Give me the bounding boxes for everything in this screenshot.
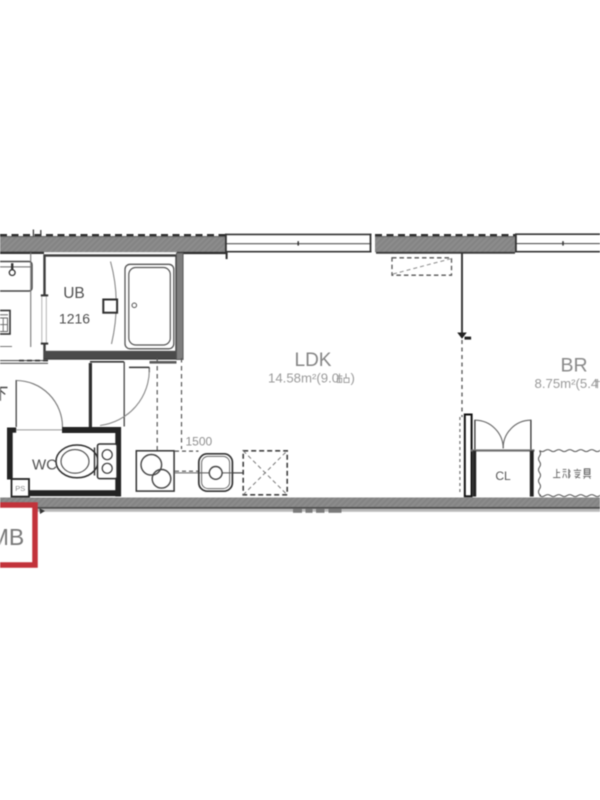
svg-text:1500: 1500: [186, 435, 213, 449]
svg-text:WC: WC: [32, 457, 57, 474]
svg-text:): ): [351, 371, 355, 386]
svg-text:8.75m²(5.4: 8.75m²(5.4: [535, 376, 599, 391]
svg-text:1216: 1216: [59, 311, 90, 327]
svg-text:14.58m²(9.0: 14.58m²(9.0: [268, 371, 339, 386]
svg-text:LDK: LDK: [295, 350, 332, 371]
svg-text:CL: CL: [495, 469, 511, 483]
svg-text:PS: PS: [15, 484, 25, 493]
svg-text:BR: BR: [560, 355, 587, 377]
svg-text:UB: UB: [63, 285, 85, 302]
svg-text:MB: MB: [0, 524, 24, 550]
